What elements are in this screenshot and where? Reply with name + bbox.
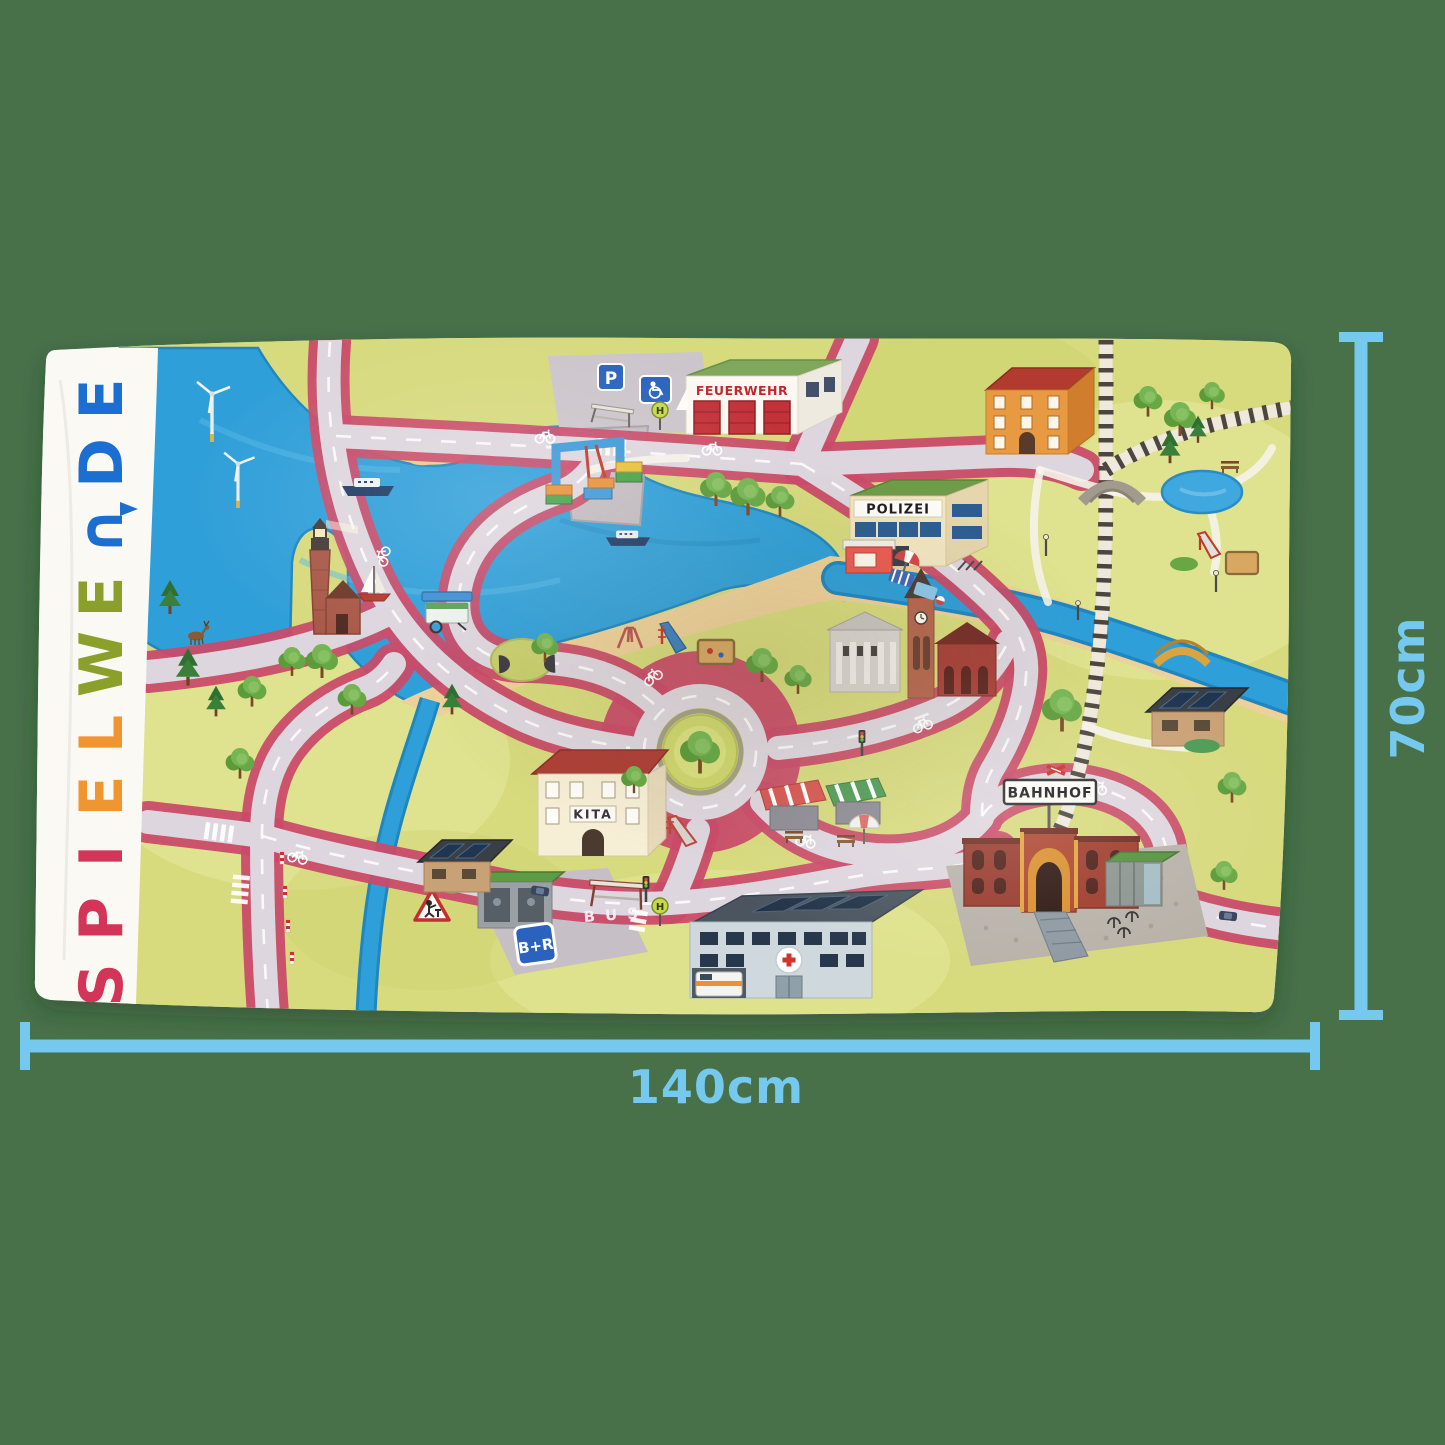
- product-photo: H: [0, 0, 1445, 1445]
- recycling-hut: [478, 872, 564, 928]
- bike-and-ride-sign: B+R: [514, 923, 557, 966]
- brand-letter: P: [67, 897, 137, 941]
- brand-wordmark: S P I E L W E ∩ D E: [67, 379, 138, 1007]
- brand-letter: W: [67, 631, 137, 697]
- brand-letter: D: [67, 438, 137, 488]
- height-dim-label: 70cm: [1381, 616, 1435, 759]
- ambulance: [696, 972, 742, 996]
- brand-letter: E: [67, 776, 137, 817]
- apartment-building: [986, 368, 1094, 454]
- brand-letter-uturn-arrow: ∩: [67, 507, 137, 556]
- brand-letter: E: [67, 577, 137, 618]
- play-map: P FEUERWEHR: [90, 320, 1350, 1050]
- towel: P FEUERWEHR: [35, 320, 1350, 1050]
- brand-letter: L: [67, 715, 137, 753]
- brand-letter: I: [67, 845, 137, 867]
- brand-letter: S: [67, 963, 137, 1006]
- product-image-stage: H: [0, 0, 1445, 1445]
- brand-letter: E: [67, 379, 137, 420]
- width-dim-label: 140cm: [628, 1060, 804, 1114]
